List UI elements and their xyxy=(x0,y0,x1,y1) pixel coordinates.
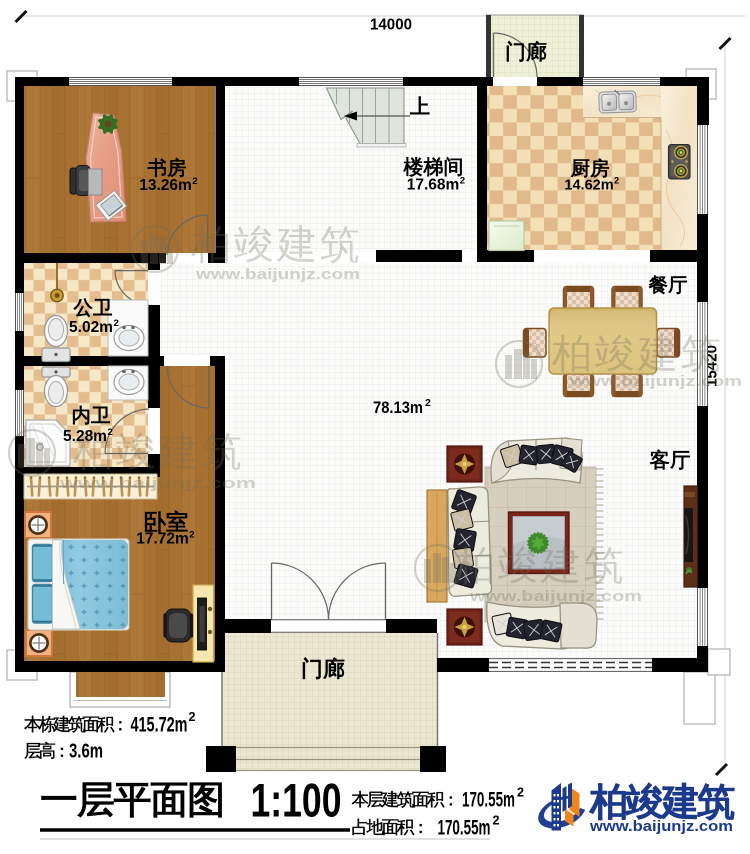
svg-text:www.baijunjz.com: www.baijunjz.com xyxy=(58,475,256,492)
svg-text:2: 2 xyxy=(614,176,619,186)
svg-text:5.02m: 5.02m xyxy=(69,319,113,336)
svg-text:2: 2 xyxy=(425,397,431,409)
svg-text:2: 2 xyxy=(493,813,500,828)
svg-text:www.baijunjz.com: www.baijunjz.com xyxy=(469,588,642,605)
svg-text:2: 2 xyxy=(114,318,119,329)
svg-text:2: 2 xyxy=(189,529,194,540)
svg-text:2: 2 xyxy=(460,175,465,186)
svg-text:415.72m: 415.72m xyxy=(131,714,188,737)
svg-text:13.26m: 13.26m xyxy=(139,177,192,194)
svg-text:1:100: 1:100 xyxy=(251,774,342,827)
svg-text:14.62m: 14.62m xyxy=(564,177,613,193)
svg-text:5.28m: 5.28m xyxy=(63,428,107,445)
svg-text:2: 2 xyxy=(517,785,524,800)
svg-text:2: 2 xyxy=(189,709,196,724)
svg-text:17.68m: 17.68m xyxy=(407,177,460,194)
svg-text:170.55m: 170.55m xyxy=(438,817,491,840)
svg-text:14000: 14000 xyxy=(370,17,412,34)
svg-text:www.baijunjz.com: www.baijunjz.com xyxy=(589,818,733,835)
svg-text:17.72m: 17.72m xyxy=(136,531,189,548)
svg-text:2: 2 xyxy=(108,427,113,438)
svg-text:170.55m: 170.55m xyxy=(462,789,515,812)
svg-text:2: 2 xyxy=(192,176,197,187)
svg-text:www.baijunjz.com: www.baijunjz.com xyxy=(569,373,742,390)
svg-text:www.baijunjz.com: www.baijunjz.com xyxy=(195,266,360,283)
svg-text:78.13m: 78.13m xyxy=(373,399,423,417)
svg-text:3.6m: 3.6m xyxy=(69,741,103,763)
